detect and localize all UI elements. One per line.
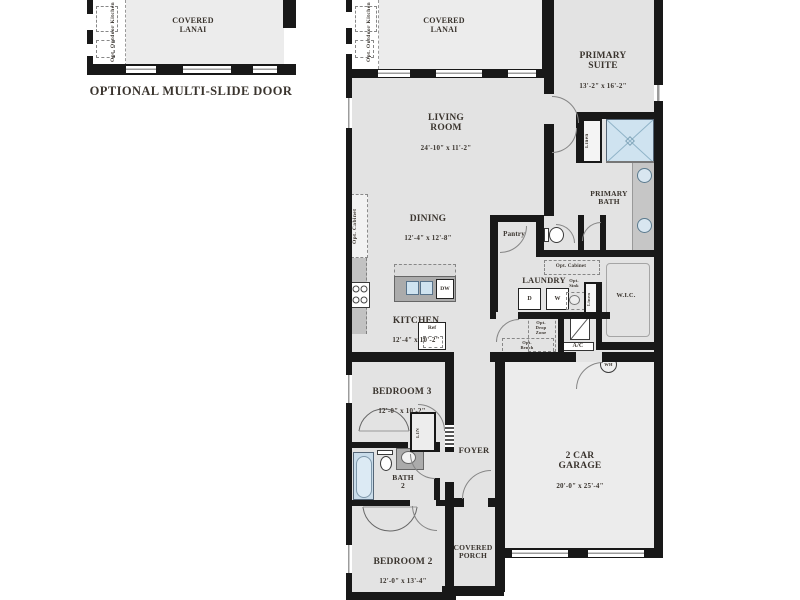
- inset-wall-left-1: [87, 0, 93, 14]
- outdoor-kitchen-label: Opt. Outdoor Kitchen: [366, 1, 380, 63]
- living-room-label-group: LIVING ROOM 24'-10" x 11'-2": [390, 102, 502, 164]
- linen-closet-bath: Linen: [582, 119, 602, 163]
- foyer-niche-hatch: [445, 425, 454, 447]
- inset-caption: OPTIONAL MULTI-SLIDE DOOR: [85, 84, 297, 98]
- tub-fixture: [353, 452, 374, 500]
- inset-slide-door-panel-2: [183, 66, 231, 73]
- wall-lanai-left-3: [346, 54, 352, 70]
- inset-wall-right: [283, 0, 296, 28]
- opt-cabinet-laundry-box: Opt. Cabinet: [544, 260, 600, 275]
- lanai-slide-door-3: [508, 70, 536, 77]
- garage-entry-gap: [576, 352, 602, 362]
- lanai-floor: [378, 0, 542, 69]
- bedroom2-closet-doors: [362, 506, 418, 532]
- garage-label: 2 CAR GARAGE: [518, 451, 642, 472]
- foyer-hall-opening: [445, 452, 454, 482]
- opt-drop-zone-label: Opt. Drop Zone: [529, 320, 553, 335]
- ac-label: A/C: [562, 342, 594, 351]
- shower-fixture: [606, 119, 654, 163]
- lanai-slide-door-1: [378, 70, 410, 77]
- primary-sink-1: [637, 168, 652, 183]
- island-sink-left: [406, 281, 419, 295]
- inset-wall-left-2: [87, 30, 93, 44]
- primary-sink-2: [637, 218, 652, 233]
- shower-glass-line: [606, 161, 654, 163]
- garage-door-2: [588, 550, 644, 557]
- lanai-slide-door-2: [436, 70, 482, 77]
- inset-outdoor-kitchen-label: Opt. Outdoor Kitchen: [110, 1, 124, 63]
- garage-label-group: 2 CAR GARAGE 20'-0" x 25'-4": [518, 440, 642, 502]
- ac-platform-icon: [571, 317, 589, 339]
- inset-slide-door-panel-1: [126, 66, 156, 73]
- living-room-dims: 24'-10" x 11'-2": [390, 145, 502, 153]
- entry-door-gap: [464, 498, 488, 507]
- wall-lanai-left-2: [346, 28, 352, 44]
- laundry-door-gap: [496, 312, 518, 319]
- primary-bath-label: PRIMARY BATH: [580, 190, 638, 207]
- primary-suite-label-group: PRIMARY SUITE 13'-2" x 16'-2": [550, 40, 656, 102]
- opt-cabinet-laundry-label: Opt. Cabinet: [545, 264, 597, 270]
- double-door-icon: [362, 506, 418, 532]
- dining-label-group: DINING 12'-4" x 12'-8": [368, 203, 488, 254]
- dryer-box: D: [518, 288, 541, 310]
- wall-ac-left: [558, 312, 564, 356]
- bath2-toilet-bowl: [380, 456, 392, 471]
- bath2-label: BATH 2: [382, 474, 424, 491]
- wh-label: WH: [601, 362, 616, 367]
- ac-unit: [570, 316, 590, 340]
- lanai-label: COVERED LANAI: [384, 16, 504, 34]
- window-living: [346, 98, 352, 128]
- dishwasher-box: DW: [436, 279, 454, 299]
- linen-hall-label: Linen: [586, 285, 596, 313]
- shower-tile-icon: [607, 120, 653, 162]
- wall-suite-bottom: [582, 112, 654, 119]
- bath2-toilet-tank: [377, 450, 393, 455]
- dining-label: DINING: [368, 214, 488, 225]
- wic-shelving-outline: [606, 263, 650, 337]
- garage-dims: 20'-0" x 25'-4": [518, 483, 642, 491]
- dining-dims: 12'-4" x 12'-8": [368, 235, 488, 243]
- bedroom3-dims: 12'-0" x 10'-2": [348, 408, 456, 416]
- inset-slide-door-panel-3: [253, 66, 277, 73]
- wall-ac-right: [596, 312, 602, 344]
- kitchen-dims: 12'-4" x 10'-2": [358, 337, 474, 345]
- primary-suite-label: PRIMARY SUITE: [550, 51, 656, 72]
- wall-wic-bottom: [596, 342, 662, 350]
- wall-left-outer: [346, 78, 352, 592]
- opt-sink-fixture: [566, 292, 585, 310]
- dryer-label: D: [527, 296, 531, 302]
- laundry-label: LAUNDRY: [500, 276, 588, 286]
- inset-lanai-label: COVERED LANAI: [133, 16, 253, 34]
- kitchen-label: KITCHEN: [358, 316, 474, 327]
- outside-below-garage: [504, 558, 662, 600]
- wall-lanai-left-1: [346, 0, 352, 12]
- garage-door-1: [512, 550, 568, 557]
- pantry-label: Pantry: [492, 231, 536, 239]
- covered-porch-label: COVERED PORCH: [446, 544, 500, 561]
- tub-basin: [356, 456, 372, 498]
- linen-bath-label: Linen: [585, 122, 598, 160]
- bedroom3-label: BEDROOM 3: [348, 387, 456, 398]
- bedroom3-label-group: BEDROOM 3 12'-0" x 10'-2": [348, 376, 456, 427]
- primary-suite-dims: 13'-2" x 16'-2": [550, 83, 656, 91]
- washer-label: W: [555, 296, 561, 302]
- bedroom2-label-group: BEDROOM 2 12'-0" x 13'-4": [348, 546, 458, 597]
- wall-bath2-top: [346, 442, 408, 448]
- opt-sink-basin: [569, 295, 580, 305]
- bedroom2-label: BEDROOM 2: [348, 557, 458, 568]
- dishwasher-label: DW: [440, 286, 449, 292]
- foyer-label: FOYER: [448, 446, 500, 456]
- kitchen-label-group: KITCHEN 12'-4" x 10'-2": [358, 305, 474, 356]
- linen-closet-hall: Linen: [584, 282, 598, 314]
- bedroom2-dims: 12'-0" x 13'-4": [348, 578, 458, 586]
- range-burners-icon: [351, 283, 369, 307]
- wic-label: W.I.C.: [600, 292, 652, 299]
- living-room-label: LIVING ROOM: [390, 113, 502, 134]
- island-sink-right: [420, 281, 433, 295]
- floor-plan-canvas: Opt. Outdoor Kitchen COVERED LANAI OPTIO…: [0, 0, 800, 600]
- wall-bath-south: [536, 250, 654, 257]
- opt-cabinet-dining: Opt. Cabinet: [351, 194, 368, 258]
